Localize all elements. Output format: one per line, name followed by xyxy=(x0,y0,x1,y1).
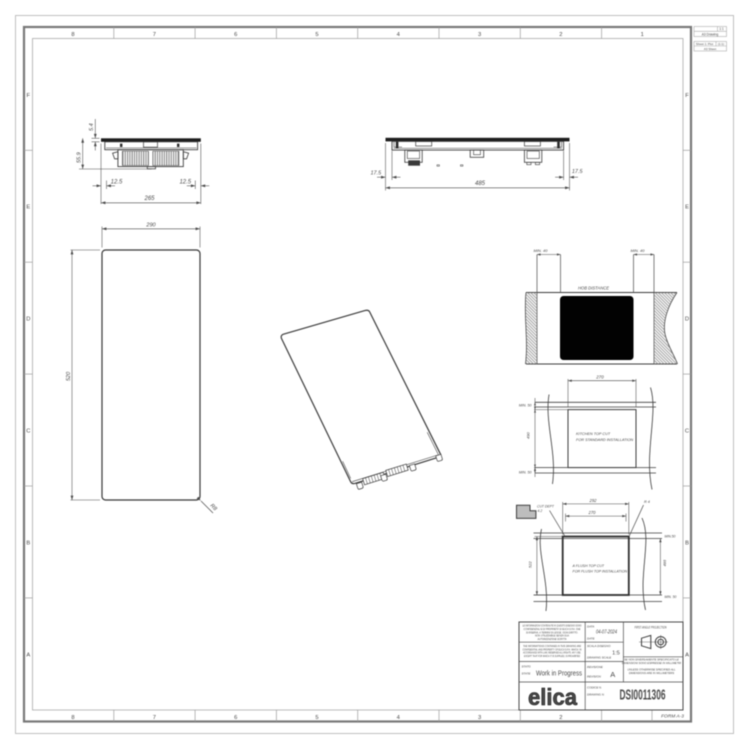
svg-text:KITCHEN TOP CUT: KITCHEN TOP CUT xyxy=(576,432,611,436)
svg-text:(1:1): (1:1) xyxy=(718,42,724,46)
svg-text:DIMENSIONS ARE IN MILLIMETERS: DIMENSIONS ARE IN MILLIMETERS xyxy=(629,671,675,675)
svg-text:17.5: 17.5 xyxy=(572,169,584,175)
svg-text:292: 292 xyxy=(589,498,598,503)
svg-text:265: 265 xyxy=(143,196,155,202)
svg-text:2: 2 xyxy=(559,32,562,38)
svg-text:STATE: STATE xyxy=(522,672,531,676)
svg-text:DATE: DATE xyxy=(587,637,595,641)
svg-text:E: E xyxy=(685,205,689,211)
svg-text:F: F xyxy=(27,93,31,99)
svg-text:A: A xyxy=(26,653,30,659)
svg-text:F: F xyxy=(685,93,689,99)
svg-text:5: 5 xyxy=(315,32,318,38)
svg-text:2: 2 xyxy=(559,715,562,721)
svg-text:REVISION: REVISION xyxy=(587,675,602,679)
svg-text:ACCORDANCE WITH LAW, RESERVES: ACCORDANCE WITH LAW, RESERVES ALL RIGHTS… xyxy=(522,651,581,655)
svg-text:A: A xyxy=(685,653,689,659)
svg-text:12.5: 12.5 xyxy=(179,179,191,185)
svg-text:04-07-2024: 04-07-2024 xyxy=(596,629,617,635)
svg-text:MIN.50: MIN.50 xyxy=(665,535,676,539)
svg-text:A FLUSH TOP CUT: A FLUSH TOP CUT xyxy=(572,564,605,568)
svg-text:AUTORIZZAZIONE SCRITTA: AUTORIZZAZIONE SCRITTA xyxy=(537,637,567,641)
svg-text:FORM A-3: FORM A-3 xyxy=(661,714,684,720)
svg-text:C: C xyxy=(685,429,689,435)
svg-text:1: 1 xyxy=(641,32,644,38)
svg-text:A3 Sheet: A3 Sheet xyxy=(704,47,717,51)
svg-text:B: B xyxy=(685,541,689,547)
svg-text:FOR STANDARD INSTALLATION: FOR STANDARD INSTALLATION xyxy=(576,438,633,442)
svg-text:DATA: DATA xyxy=(587,624,594,628)
svg-text:FOR FLUSH TOP INSTALLATION: FOR FLUSH TOP INSTALLATION xyxy=(573,570,628,574)
svg-text:UNLESS OTHERWISE SPECIFIED ALL: UNLESS OTHERWISE SPECIFIED ALL xyxy=(627,668,676,672)
svg-text:CUT DEPT: CUT DEPT xyxy=(537,505,555,509)
svg-text:7: 7 xyxy=(153,32,156,38)
svg-text:D: D xyxy=(26,317,30,323)
svg-text:DSI0011306: DSI0011306 xyxy=(620,687,666,704)
svg-text:R 4: R 4 xyxy=(644,500,650,504)
svg-text:486: 486 xyxy=(662,559,667,566)
svg-text:C: C xyxy=(26,429,30,435)
svg-text:SCALA DISEGNO: SCALA DISEGNO xyxy=(587,644,611,648)
svg-text:CONFIDENZIALI E DI PROPRIETA': CONFIDENZIALI E DI PROPRIETA' DI ELICA S… xyxy=(524,627,581,631)
svg-text:CONFIDENTIAL AND PROPERTY OF E: CONFIDENTIAL AND PROPERTY OF ELICA S.P.A… xyxy=(523,647,582,651)
svg-text:DRAWING N.: DRAWING N. xyxy=(587,693,605,697)
svg-text:EXCEPT THAT FOR WHICH IT IS SU: EXCEPT THAT FOR WHICH IT IS SUPPLIED, IS… xyxy=(524,654,580,658)
svg-text:E: E xyxy=(26,205,30,211)
svg-text:8: 8 xyxy=(71,715,74,721)
svg-text:3: 3 xyxy=(478,32,481,38)
svg-text:6: 6 xyxy=(234,715,237,721)
svg-text:1:1: 1:1 xyxy=(719,27,724,31)
svg-text:MIN. 50: MIN. 50 xyxy=(519,471,532,475)
svg-text:THE INFORMATIONS CONTAINED IN: THE INFORMATIONS CONTAINED IN THIS DRAWI… xyxy=(523,644,581,648)
svg-text:270: 270 xyxy=(595,374,604,379)
svg-text:12.5: 12.5 xyxy=(111,179,123,185)
svg-text:A: A xyxy=(610,670,615,679)
svg-text:485: 485 xyxy=(475,181,486,187)
svg-text:7: 7 xyxy=(153,715,156,721)
svg-text:4.2: 4.2 xyxy=(538,509,543,513)
svg-text:490: 490 xyxy=(526,432,531,439)
svg-text:17.5: 17.5 xyxy=(370,171,382,177)
svg-text:6: 6 xyxy=(234,32,237,38)
svg-text:NON UTILIZZABILE SENZA SUA: NON UTILIZZABILE SENZA SUA xyxy=(535,634,569,638)
svg-text:LE INFORMAZIONI CONTENUTE IN Q: LE INFORMAZIONI CONTENUTE IN QUESTO DISE… xyxy=(523,624,582,628)
svg-text:FIRST ANGLE PROJECTION: FIRST ANGLE PROJECTION xyxy=(635,625,668,629)
svg-text:SE NON DIVERSAMENTE SPECIFICAT: SE NON DIVERSAMENTE SPECIFICATO LE xyxy=(624,658,679,662)
svg-text:DRAWING SCALE: DRAWING SCALE xyxy=(587,655,611,659)
svg-text:DIMENSIONI SONO ESPRESSE IN MI: DIMENSIONI SONO ESPRESSE IN MILLIMETRI xyxy=(622,661,681,665)
svg-text:522: 522 xyxy=(527,561,532,568)
svg-text:520: 520 xyxy=(66,371,72,381)
svg-text:STATO: STATO xyxy=(522,665,532,669)
svg-text:MIN. 40: MIN. 40 xyxy=(630,248,645,253)
svg-text:A3 Drawing: A3 Drawing xyxy=(702,33,719,37)
svg-text:Work in Progress: Work in Progress xyxy=(536,668,582,677)
svg-text:D: D xyxy=(685,317,689,323)
svg-text:HOB DISTANCE: HOB DISTANCE xyxy=(578,286,609,291)
svg-text:3: 3 xyxy=(478,715,481,721)
svg-text:SI RISERVA, A TERMINI DI LEGGE: SI RISERVA, A TERMINI DI LEGGE, OGNI DIR… xyxy=(526,630,578,634)
svg-text:REVISIONE: REVISIONE xyxy=(587,665,603,669)
svg-text:270: 270 xyxy=(588,510,597,515)
svg-text:8: 8 xyxy=(71,32,74,38)
svg-text:MIN. 40: MIN. 40 xyxy=(533,248,548,253)
svg-text:CODICE N.: CODICE N. xyxy=(587,686,602,690)
svg-text:Sheet 1: Plot: Sheet 1: Plot xyxy=(696,42,713,46)
svg-text:290: 290 xyxy=(145,222,156,228)
svg-text:55.9: 55.9 xyxy=(76,152,82,163)
svg-text:elica: elica xyxy=(528,684,577,710)
svg-text:MIN. 50: MIN. 50 xyxy=(665,595,677,599)
svg-text:MIN. 50: MIN. 50 xyxy=(519,403,532,407)
svg-text:1:5: 1:5 xyxy=(612,650,620,656)
svg-text:5.4: 5.4 xyxy=(89,123,95,131)
svg-text:B: B xyxy=(26,541,30,547)
svg-text:5: 5 xyxy=(315,715,318,721)
